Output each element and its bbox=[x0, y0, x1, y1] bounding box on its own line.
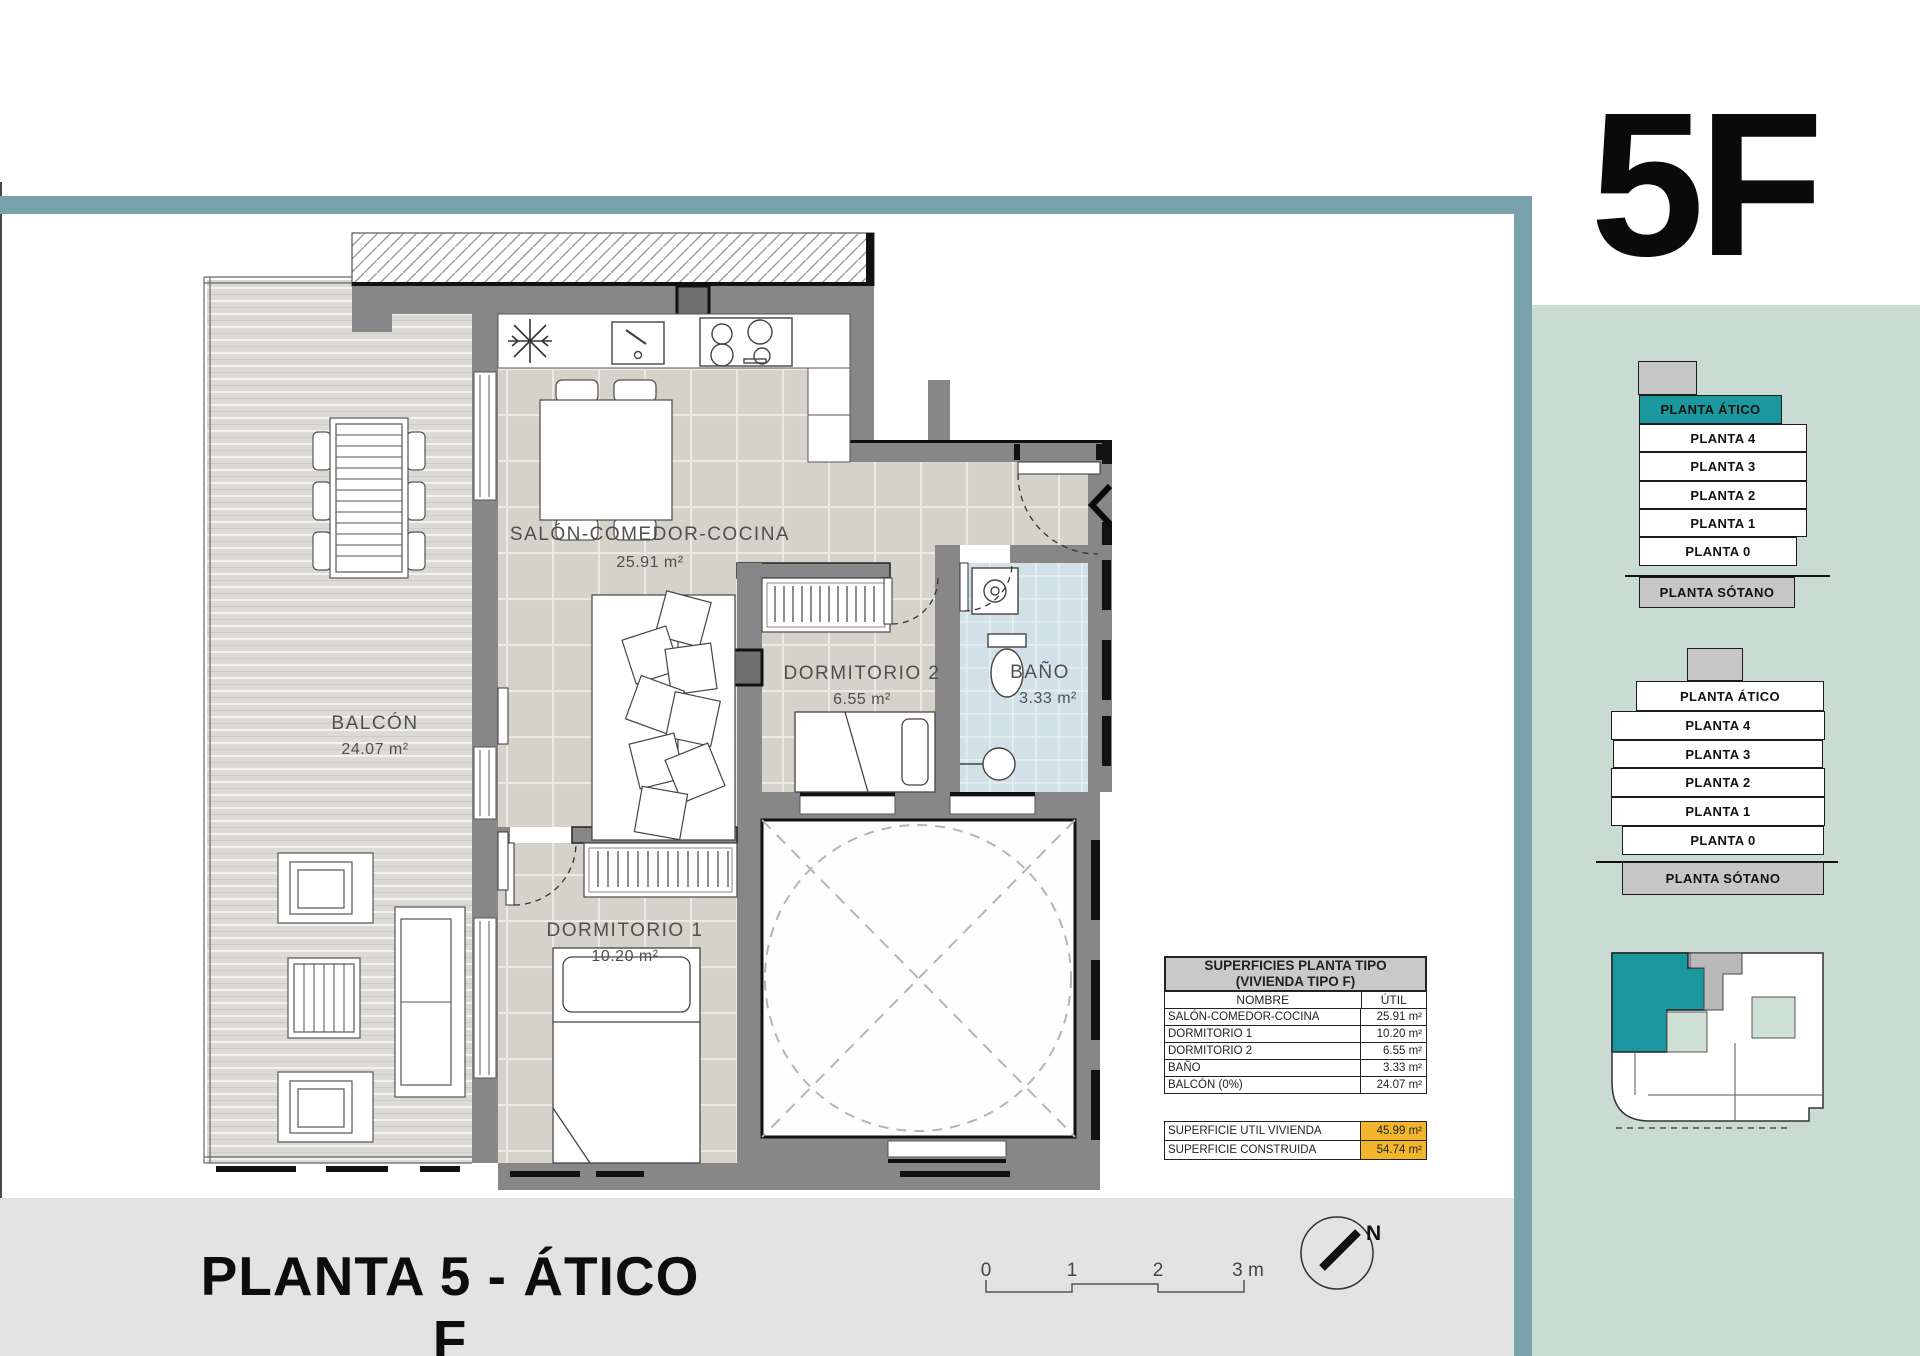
stack2-floor-1[interactable]: PLANTA 1 bbox=[1611, 797, 1825, 826]
stack2-floor-3[interactable]: PLANTA 3 bbox=[1613, 740, 1823, 768]
closet-dormitorio-1 bbox=[584, 843, 737, 897]
bed-dormitorio-2 bbox=[795, 712, 935, 792]
washing-machine-icon bbox=[972, 568, 1018, 614]
label-salon: SALÓN-COMEDOR-COCINA bbox=[510, 523, 790, 545]
table-row: BAÑO 3.33 m² bbox=[1164, 1059, 1427, 1077]
stack1-floor-2[interactable]: PLANTA 2 bbox=[1639, 481, 1807, 509]
unit-code-text: 5F bbox=[1590, 82, 1817, 287]
stack2-roof-cap bbox=[1687, 648, 1743, 681]
label-dormitorio2: DORMITORIO 2 bbox=[784, 663, 941, 684]
total-construida-value: 54.74 m² bbox=[1360, 1141, 1426, 1159]
closet-dormitorio-2 bbox=[762, 578, 890, 632]
sofa bbox=[592, 591, 735, 840]
outdoor-coffee-table bbox=[288, 958, 360, 1038]
stack2-floor-atico[interactable]: PLANTA ÁTICO bbox=[1636, 681, 1824, 711]
scale-and-compass: 0 1 2 3 m N bbox=[940, 1200, 1440, 1320]
stack2-floor-sotano[interactable]: PLANTA SÓTANO bbox=[1622, 862, 1824, 895]
area-balcon: 24.07 m² bbox=[341, 741, 408, 758]
col-nombre: NOMBRE bbox=[1165, 992, 1361, 1008]
key-plan bbox=[1590, 945, 1850, 1145]
scale-bar: 0 1 2 3 m bbox=[981, 1260, 1264, 1292]
north-compass: N bbox=[1301, 1217, 1381, 1289]
stack1-floor-4[interactable]: PLANTA 4 bbox=[1639, 424, 1807, 452]
accent-bar-right bbox=[1514, 196, 1532, 1356]
stack1-floor-3[interactable]: PLANTA 3 bbox=[1639, 452, 1807, 481]
fridge-icon bbox=[508, 319, 552, 363]
svg-text:0: 0 bbox=[981, 1260, 992, 1281]
label-balcon: BALCÓN bbox=[331, 712, 418, 734]
north-label: N bbox=[1366, 1222, 1381, 1245]
table-total-util: SUPERFICIE UTIL VIVIENDA 45.99 m² bbox=[1164, 1121, 1427, 1141]
outdoor-dining-set bbox=[313, 418, 425, 578]
outdoor-armchair-2 bbox=[278, 1072, 373, 1142]
dining-table bbox=[540, 380, 672, 540]
surface-table-header: SUPERFICIES PLANTA TIPO (VIVIENDA TIPO F… bbox=[1164, 956, 1427, 992]
pillar-kitchen bbox=[677, 286, 709, 318]
svg-text:2: 2 bbox=[1153, 1260, 1164, 1281]
surface-table-title-2: (VIVIENDA TIPO F) bbox=[1236, 974, 1356, 990]
stack1-floor-atico[interactable]: PLANTA ÁTICO bbox=[1639, 395, 1782, 424]
surface-table-colhead: NOMBRE ÚTIL bbox=[1164, 991, 1427, 1009]
area-salon: 25.91 m² bbox=[616, 554, 683, 571]
label-dormitorio1: DORMITORIO 1 bbox=[547, 920, 704, 941]
area-dormitorio1: 10.20 m² bbox=[591, 948, 658, 965]
hatch-strip bbox=[352, 233, 874, 287]
surface-table-title-1: SUPERFICIES PLANTA TIPO bbox=[1204, 958, 1386, 974]
area-dormitorio2: 6.55 m² bbox=[833, 691, 891, 708]
stack2-floor-4[interactable]: PLANTA 4 bbox=[1611, 711, 1825, 740]
page-title: PLANTA 5 - ÁTICO F bbox=[180, 1244, 720, 1356]
outdoor-sofa bbox=[395, 907, 465, 1097]
table-row: DORMITORIO 2 6.55 m² bbox=[1164, 1042, 1427, 1060]
table-total-construida: SUPERFICIE CONSTRUIDA 54.74 m² bbox=[1164, 1140, 1427, 1160]
table-row: SALÓN-COMEDOR-COCINA 25.91 m² bbox=[1164, 1008, 1427, 1026]
total-util-value: 45.99 m² bbox=[1360, 1122, 1426, 1140]
stack1-floor-0[interactable]: PLANTA 0 bbox=[1639, 537, 1797, 566]
table-row: BALCÓN (0%) 24.07 m² bbox=[1164, 1076, 1427, 1094]
unit-code: 5F bbox=[1532, 0, 1920, 305]
col-util: ÚTIL bbox=[1361, 992, 1427, 1008]
cooktop-icon bbox=[700, 318, 792, 366]
key-plan-patio-1 bbox=[1667, 1012, 1707, 1052]
svg-text:3 m: 3 m bbox=[1232, 1260, 1264, 1281]
accent-bar-top bbox=[0, 196, 1532, 214]
stack1-floor-sotano[interactable]: PLANTA SÓTANO bbox=[1639, 577, 1795, 608]
outdoor-armchair-1 bbox=[278, 853, 373, 923]
surface-table: SUPERFICIES PLANTA TIPO (VIVIENDA TIPO F… bbox=[1164, 956, 1427, 1160]
page: SALÓN-COMEDOR-COCINA 25.91 m² DORMITORIO… bbox=[0, 0, 1920, 1356]
table-row: DORMITORIO 1 10.20 m² bbox=[1164, 1025, 1427, 1043]
sheet-left-border bbox=[0, 182, 2, 1198]
stack2-floor-2[interactable]: PLANTA 2 bbox=[1611, 768, 1825, 797]
patio-lightwell bbox=[762, 820, 1075, 1137]
sink-icon bbox=[612, 322, 664, 364]
area-bano: 3.33 m² bbox=[1019, 690, 1077, 707]
bed-dormitorio-1 bbox=[553, 948, 700, 1163]
stack1-roof-cap bbox=[1638, 361, 1697, 395]
label-bano: BAÑO bbox=[1010, 661, 1070, 683]
stack1-floor-1[interactable]: PLANTA 1 bbox=[1639, 509, 1807, 537]
key-plan-patio-2 bbox=[1752, 997, 1795, 1038]
svg-text:1: 1 bbox=[1067, 1260, 1078, 1281]
stack2-floor-0[interactable]: PLANTA 0 bbox=[1622, 826, 1824, 855]
